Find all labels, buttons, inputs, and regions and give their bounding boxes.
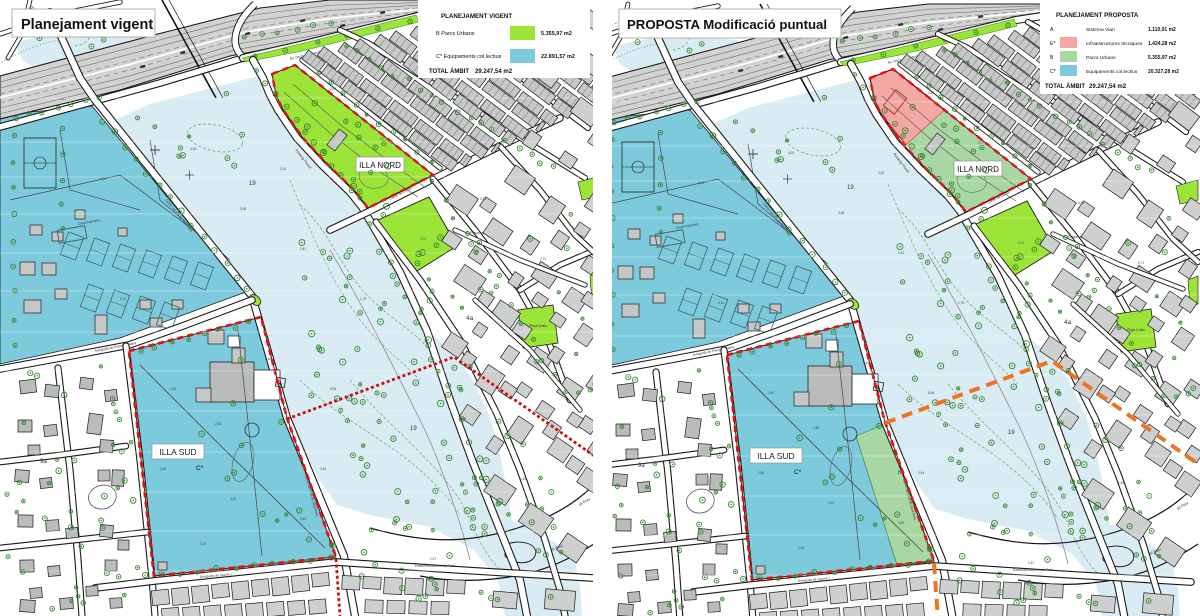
svg-text:B: B: [1050, 55, 1054, 61]
svg-text:TOTAL ÀMBIT: TOTAL ÀMBIT: [429, 68, 469, 75]
svg-text:Equipaments col.lectius: Equipaments col.lectius: [1086, 69, 1138, 75]
svg-text:20.327,28 m2: 20.327,28 m2: [1148, 69, 1179, 75]
svg-text:C* Equipaments col.lectius: C* Equipaments col.lectius: [436, 54, 502, 60]
svg-text:C*: C*: [1050, 69, 1056, 75]
svg-text:29.247,54 m2: 29.247,54 m2: [1089, 84, 1127, 90]
svg-text:29.247,54 m2: 29.247,54 m2: [475, 69, 513, 75]
svg-text:E*: E*: [1050, 41, 1055, 47]
svg-text:5.355,97 m2: 5.355,97 m2: [1148, 55, 1176, 61]
svg-text:Sistema Viari: Sistema Viari: [1086, 27, 1115, 33]
svg-text:A: A: [1050, 27, 1054, 33]
svg-text:1.110,01 m2: 1.110,01 m2: [1148, 27, 1176, 33]
svg-text:Infraestructures tècniques: Infraestructures tècniques: [1086, 41, 1143, 47]
svg-text:TOTAL ÀMBIT: TOTAL ÀMBIT: [1045, 83, 1085, 90]
svg-text:5.355,97 m2: 5.355,97 m2: [541, 31, 572, 37]
svg-text:Parcs Urbans: Parcs Urbans: [1086, 55, 1116, 61]
svg-text:B: B: [898, 470, 902, 476]
svg-text:1.424,28 m2: 1.424,28 m2: [1148, 41, 1176, 47]
svg-text:PLANEJAMENT VIGENT: PLANEJAMENT VIGENT: [441, 13, 512, 20]
svg-text:PROPOSTA Modificació puntual: PROPOSTA Modificació puntual: [627, 17, 827, 32]
svg-text:B Parcs Urbans: B Parcs Urbans: [436, 31, 475, 37]
svg-text:22.891,57 m2: 22.891,57 m2: [541, 54, 575, 60]
svg-text:PLANEJAMENT PROPOSTA: PLANEJAMENT PROPOSTA: [1056, 12, 1139, 19]
svg-text:Planejament vigent: Planejament vigent: [21, 17, 153, 33]
